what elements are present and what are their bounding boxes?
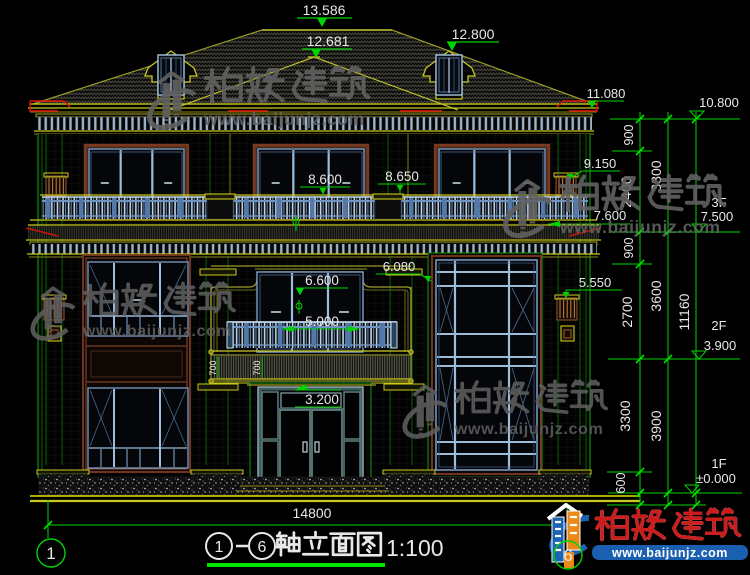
svg-text:3.900: 3.900 [704,338,737,353]
svg-text:www.baijunjz.com: www.baijunjz.com [611,546,728,560]
svg-text:www.baijunjz.com: www.baijunjz.com [203,109,365,129]
svg-text:900: 900 [622,238,636,259]
svg-text:6.080: 6.080 [383,259,416,274]
svg-text:3300: 3300 [617,400,633,431]
svg-text:3.200: 3.200 [305,392,339,407]
svg-text:12.681: 12.681 [307,33,350,49]
svg-text:11.080: 11.080 [587,86,626,101]
svg-text:2F: 2F [711,318,726,333]
svg-text:2700: 2700 [619,296,635,327]
svg-text:1: 1 [215,539,224,556]
svg-text:8.650: 8.650 [385,169,419,184]
svg-text:14800: 14800 [293,505,332,521]
svg-text:±0.000: ±0.000 [696,471,736,486]
svg-text:6.600: 6.600 [305,273,339,288]
svg-text:700: 700 [252,360,262,375]
svg-text:13.586: 13.586 [303,2,346,18]
svg-text:1:100: 1:100 [386,535,444,561]
svg-text:11160: 11160 [676,293,692,330]
svg-text:700: 700 [208,360,218,375]
svg-text:10.800: 10.800 [699,95,739,110]
svg-text:6: 6 [258,539,267,556]
svg-text:1F: 1F [711,456,726,471]
svg-text:9.150: 9.150 [584,156,617,171]
svg-text:www.baijunjz.com: www.baijunjz.com [559,217,721,237]
svg-text:3600: 3600 [648,280,664,311]
svg-text:6: 6 [563,546,572,565]
svg-text:www.baijunjz.com: www.baijunjz.com [82,322,232,340]
svg-text:12.800: 12.800 [452,26,495,42]
svg-text:8.600: 8.600 [308,172,342,187]
svg-text:1: 1 [46,544,55,563]
svg-text:www.baijunjz.com: www.baijunjz.com [454,420,604,438]
svg-text:900: 900 [622,125,636,146]
svg-text:5.000: 5.000 [305,314,339,329]
svg-text:5.550: 5.550 [579,275,612,290]
svg-text:3900: 3900 [648,410,664,441]
svg-text:600: 600 [614,473,628,494]
